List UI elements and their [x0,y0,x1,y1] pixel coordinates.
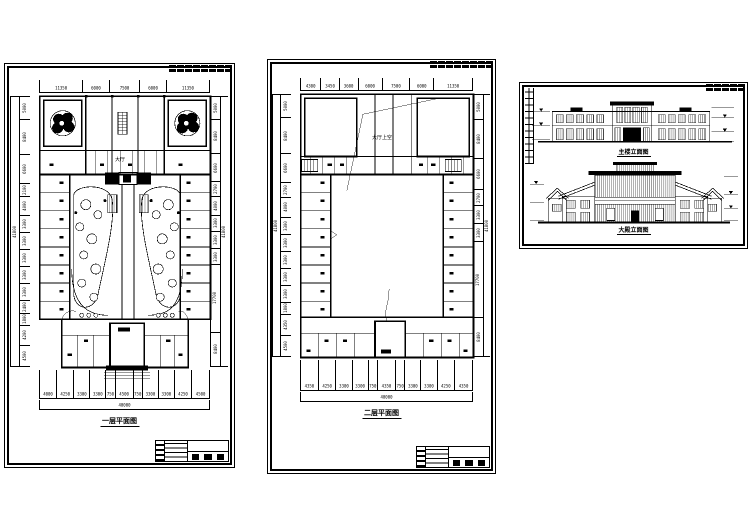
dim-value: 4500 [115,370,133,398]
pergola-structures [108,195,148,213]
sheet-inner-frame: 43003450360060007500600011350 5000840066… [270,62,493,471]
elevations-linework [524,87,743,244]
left-wing-walls [301,175,331,318]
dim-value: 750 [133,370,142,398]
dim-value: 4300 [300,78,320,90]
sheet-inner-frame: 1135060007500600011350 50008400660021004… [7,66,232,465]
dim-value: 3300 [20,215,30,232]
bottom-wing-walls [62,319,189,367]
dim-value: 4000 [20,196,30,215]
dim-value: 41800 [273,94,280,356]
title-block-cell [417,447,425,467]
tree-icon [50,111,75,136]
dim-value: 5000 [211,96,220,119]
dim-value: 6000 [358,78,382,90]
dim-value: 6600 [211,153,220,181]
dim-value: 3600 [339,78,358,90]
dim-value: 11350 [166,80,209,92]
dim-value: 3300 [20,249,30,266]
dim-value: 8400 [211,119,220,153]
dim-value: 11350 [433,78,472,90]
stair-icon [445,159,461,171]
dim-value: 750 [105,370,114,398]
dim-value: 41800 [484,94,490,356]
dim-value: 3300 [281,234,291,251]
right-wing-walls [443,175,473,318]
dim-value: 40000 [300,392,472,401]
plan1-left-dimension-col: 5000840066002100400033003300330033003300… [19,96,30,367]
dim-value: 5000 [20,96,30,119]
courtyard-trees [74,199,180,317]
plan2-right-total-col: 41800 [483,94,490,357]
dim-value: 4200 [20,325,30,345]
plan2-left-dimension-col: 5000840066002700400033003300330033003300… [280,94,291,357]
sheet-first-floor-plan: 1135060007500600011350 50008400660021004… [4,63,235,468]
dim-value: 8400 [281,117,291,153]
dim-value: 4250 [437,360,455,390]
void-label: 大厅上空 [372,134,392,141]
plan2-top-dimension-row: 43003450360060007500600011350 [300,78,473,91]
dim-value: 6000 [82,80,109,92]
dim-value: 4500 [281,335,291,356]
dim-value: 3300 [73,370,89,398]
dim-value: 3300 [142,370,158,398]
dim-value: 3300 [420,360,436,390]
dim-value: 2700 [281,182,291,197]
title-block-cell [187,441,228,461]
dim-value: 3300 [281,285,291,302]
plan1-right-total-col: 41800 [220,96,228,367]
dim-value: 3300 [474,205,483,223]
title-block-cell [425,447,448,467]
dim-value: 3300 [281,268,291,285]
plan1-left-total-col: 41800 [10,96,19,367]
plan2-left-total-col: 41800 [272,94,280,357]
dim-value: 4000 [211,196,220,215]
dim-value: 5000 [281,94,291,117]
dim-value: 3300 [211,248,220,265]
dim-value: 41800 [221,96,228,366]
dim-value: 4000 [39,370,56,398]
sheet-elevations: 主楼立面图 大殿立面图 [519,82,748,249]
dim-value: 7500 [382,78,410,90]
title-block-cell [188,441,228,451]
dim-value: 6000 [139,80,166,92]
title-block-cell [449,447,489,457]
dim-value: 3300 [335,360,351,390]
stair-icon [118,112,127,134]
dim-value: 3300 [281,251,291,268]
dim-value: 11350 [39,80,82,92]
lower-elevation-title: 大殿立面图 [616,225,650,235]
plan2-right-dimension-col: 500084006600270033003300177008400 [473,94,483,357]
dim-value: 4350 [300,360,318,390]
title-block-cell [188,451,228,461]
dim-value: 3300 [281,217,291,234]
hall-grid [40,95,211,174]
dim-value: 4250 [174,370,191,398]
upper-elevation [532,101,734,141]
dim-value: 3300 [20,232,30,249]
dim-value: 3450 [320,78,338,90]
left-wing-rooms [40,182,70,311]
tree-icon [175,111,200,136]
dim-value: 3300 [404,360,420,390]
dim-value: 41800 [11,96,19,366]
dim-value: 2700 [474,189,483,205]
dim-value: 3300 [158,370,174,398]
title-block-cell [156,441,164,461]
hall-label: 大厅 [115,156,125,163]
sheet-second-floor-plan: 43003450360060007500600011350 5000840066… [267,59,496,474]
dim-value: 17700 [474,241,483,317]
plan2-total-dimension-row: 40000 [300,392,473,402]
side-section-right [675,182,723,222]
title-block-cell [449,457,489,467]
dim-value: 8400 [20,119,30,154]
cad-drawing-page: { "page": { "background": "#ffffff", "li… [0,0,749,530]
plan1-top-dimension-row: 1135060007500600011350 [39,80,210,93]
dim-value: 40000 [39,400,209,409]
dim-value: 6600 [281,153,291,182]
dim-value: 4000 [281,197,291,217]
stair-band [301,156,474,174]
dim-value: 8400 [211,332,220,366]
dim-value: 6000 [409,78,433,90]
lower-elevation [530,162,738,223]
dim-value: 2400 [20,300,30,314]
plan1-title: 一层平面图 [100,416,139,427]
dim-value: 3300 [211,215,220,232]
sheet-inner-frame: 主楼立面图 大殿立面图 [522,85,745,246]
dim-value: 6600 [20,154,30,183]
dim-value: 3300 [20,266,30,283]
stair-icon [302,159,318,171]
plan2-title: 二层平面图 [362,408,401,419]
right-wing-rooms [443,182,473,311]
dim-value: 4350 [281,314,291,335]
dim-value: 3300 [89,370,105,398]
dim-value: 7500 [109,80,140,92]
dim-value: 2700 [211,181,220,195]
side-section-left [546,182,594,222]
dim-value: 3300 [20,283,30,300]
upper-elevation-title: 主楼立面图 [616,147,650,157]
plan1-bottom-dimension-row: 4000425033003300750450075033003300425045… [39,370,210,399]
dim-value: 4350 [454,360,472,390]
title-block-cell [164,441,187,461]
dim-value: 1800 [20,313,30,324]
title-block [155,440,229,462]
dim-value: 5000 [474,94,483,119]
bottom-wing-rooms [301,289,474,357]
title-block-cell [448,447,489,467]
dim-value: 750 [395,360,404,390]
dim-value: 2100 [20,183,30,196]
dim-value: 8400 [474,317,483,356]
plan1-right-dimension-col: 5000840066002700400033003300330017700840… [210,96,220,367]
dim-value: 3300 [211,231,220,248]
plan2-bottom-dimension-row: 4350425033003300750435075033003300425043… [300,360,473,391]
dim-value: 4350 [377,360,395,390]
dim-value: 4500 [20,345,30,366]
dim-value: 17700 [211,264,220,331]
dim-value: 1800 [281,302,291,314]
dim-value: 3300 [352,360,368,390]
plan1-total-dimension-row: 40000 [39,400,210,410]
dim-value: 8400 [474,119,483,158]
dim-value: 6600 [474,158,483,189]
dim-value: 4250 [56,370,73,398]
right-wing-rooms [180,182,210,311]
title-block [416,446,490,468]
dim-value: 4250 [318,360,336,390]
dim-value: 3300 [474,223,483,241]
entrance-door [623,128,641,142]
dim-value: 750 [368,360,377,390]
dim-value: 4500 [191,370,209,398]
